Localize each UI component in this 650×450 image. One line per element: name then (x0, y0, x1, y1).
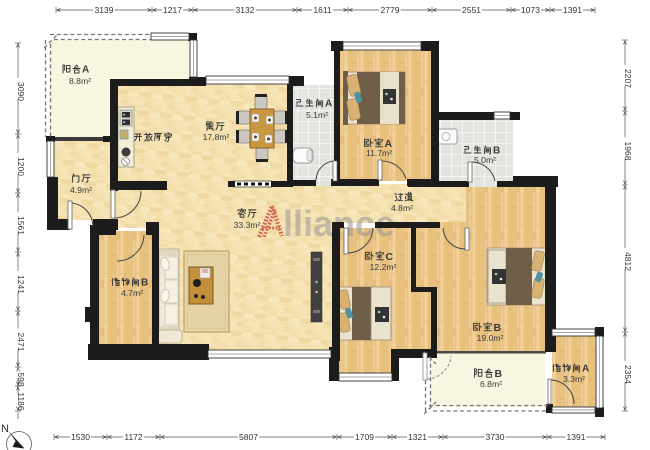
svg-text:8.8m²: 8.8m² (69, 76, 91, 86)
svg-text:1200: 1200 (16, 157, 26, 176)
svg-text:3730: 3730 (486, 432, 505, 442)
svg-text:2354: 2354 (623, 365, 633, 384)
svg-text:1530: 1530 (71, 432, 90, 442)
svg-text:1321: 1321 (408, 432, 427, 442)
svg-text:B: B (494, 322, 502, 334)
svg-text:1968: 1968 (623, 142, 633, 161)
svg-text:5.0m²: 5.0m² (474, 155, 496, 165)
svg-text:B: B (141, 278, 148, 289)
svg-text:3139: 3139 (95, 5, 114, 15)
svg-text:6.8m²: 6.8m² (480, 379, 502, 389)
svg-text:3132: 3132 (236, 5, 255, 15)
svg-text:12.2m²: 12.2m² (370, 262, 397, 272)
svg-text:3.3m²: 3.3m² (563, 374, 585, 384)
svg-text:1611: 1611 (313, 5, 332, 15)
svg-text:1391: 1391 (563, 5, 582, 15)
svg-text:C: C (386, 251, 394, 263)
svg-text:4812: 4812 (623, 252, 633, 271)
svg-text:4.9m²: 4.9m² (70, 185, 92, 195)
svg-text:19.0m²: 19.0m² (477, 333, 504, 343)
svg-text:A: A (582, 364, 589, 375)
svg-text:5807: 5807 (239, 432, 258, 442)
svg-text:1073: 1073 (521, 5, 540, 15)
svg-text:33.3m²: 33.3m² (234, 220, 261, 230)
svg-text:2471: 2471 (16, 333, 26, 352)
svg-text:17.8m²: 17.8m² (203, 132, 230, 142)
svg-text:2207: 2207 (623, 69, 633, 88)
svg-text:1709: 1709 (355, 432, 374, 442)
svg-text:A: A (325, 99, 332, 110)
svg-text:11.7m²: 11.7m² (366, 148, 392, 158)
svg-text:1172: 1172 (124, 432, 143, 442)
svg-text:4.7m²: 4.7m² (121, 288, 143, 298)
svg-text:4.8m²: 4.8m² (391, 203, 413, 213)
svg-text:A: A (82, 65, 89, 76)
svg-text:3090: 3090 (16, 82, 26, 101)
svg-text:N: N (1, 423, 9, 435)
svg-text:1391: 1391 (567, 432, 586, 442)
svg-text:1561: 1561 (16, 216, 26, 235)
svg-text:598: 598 (16, 372, 26, 386)
svg-text:B: B (495, 368, 503, 380)
svg-text:2551: 2551 (462, 5, 481, 15)
svg-text:1186: 1186 (16, 392, 26, 411)
svg-text:1241: 1241 (16, 275, 26, 294)
svg-text:2779: 2779 (381, 5, 400, 15)
svg-text:1217: 1217 (163, 5, 182, 15)
svg-text:5.1m²: 5.1m² (306, 110, 328, 120)
